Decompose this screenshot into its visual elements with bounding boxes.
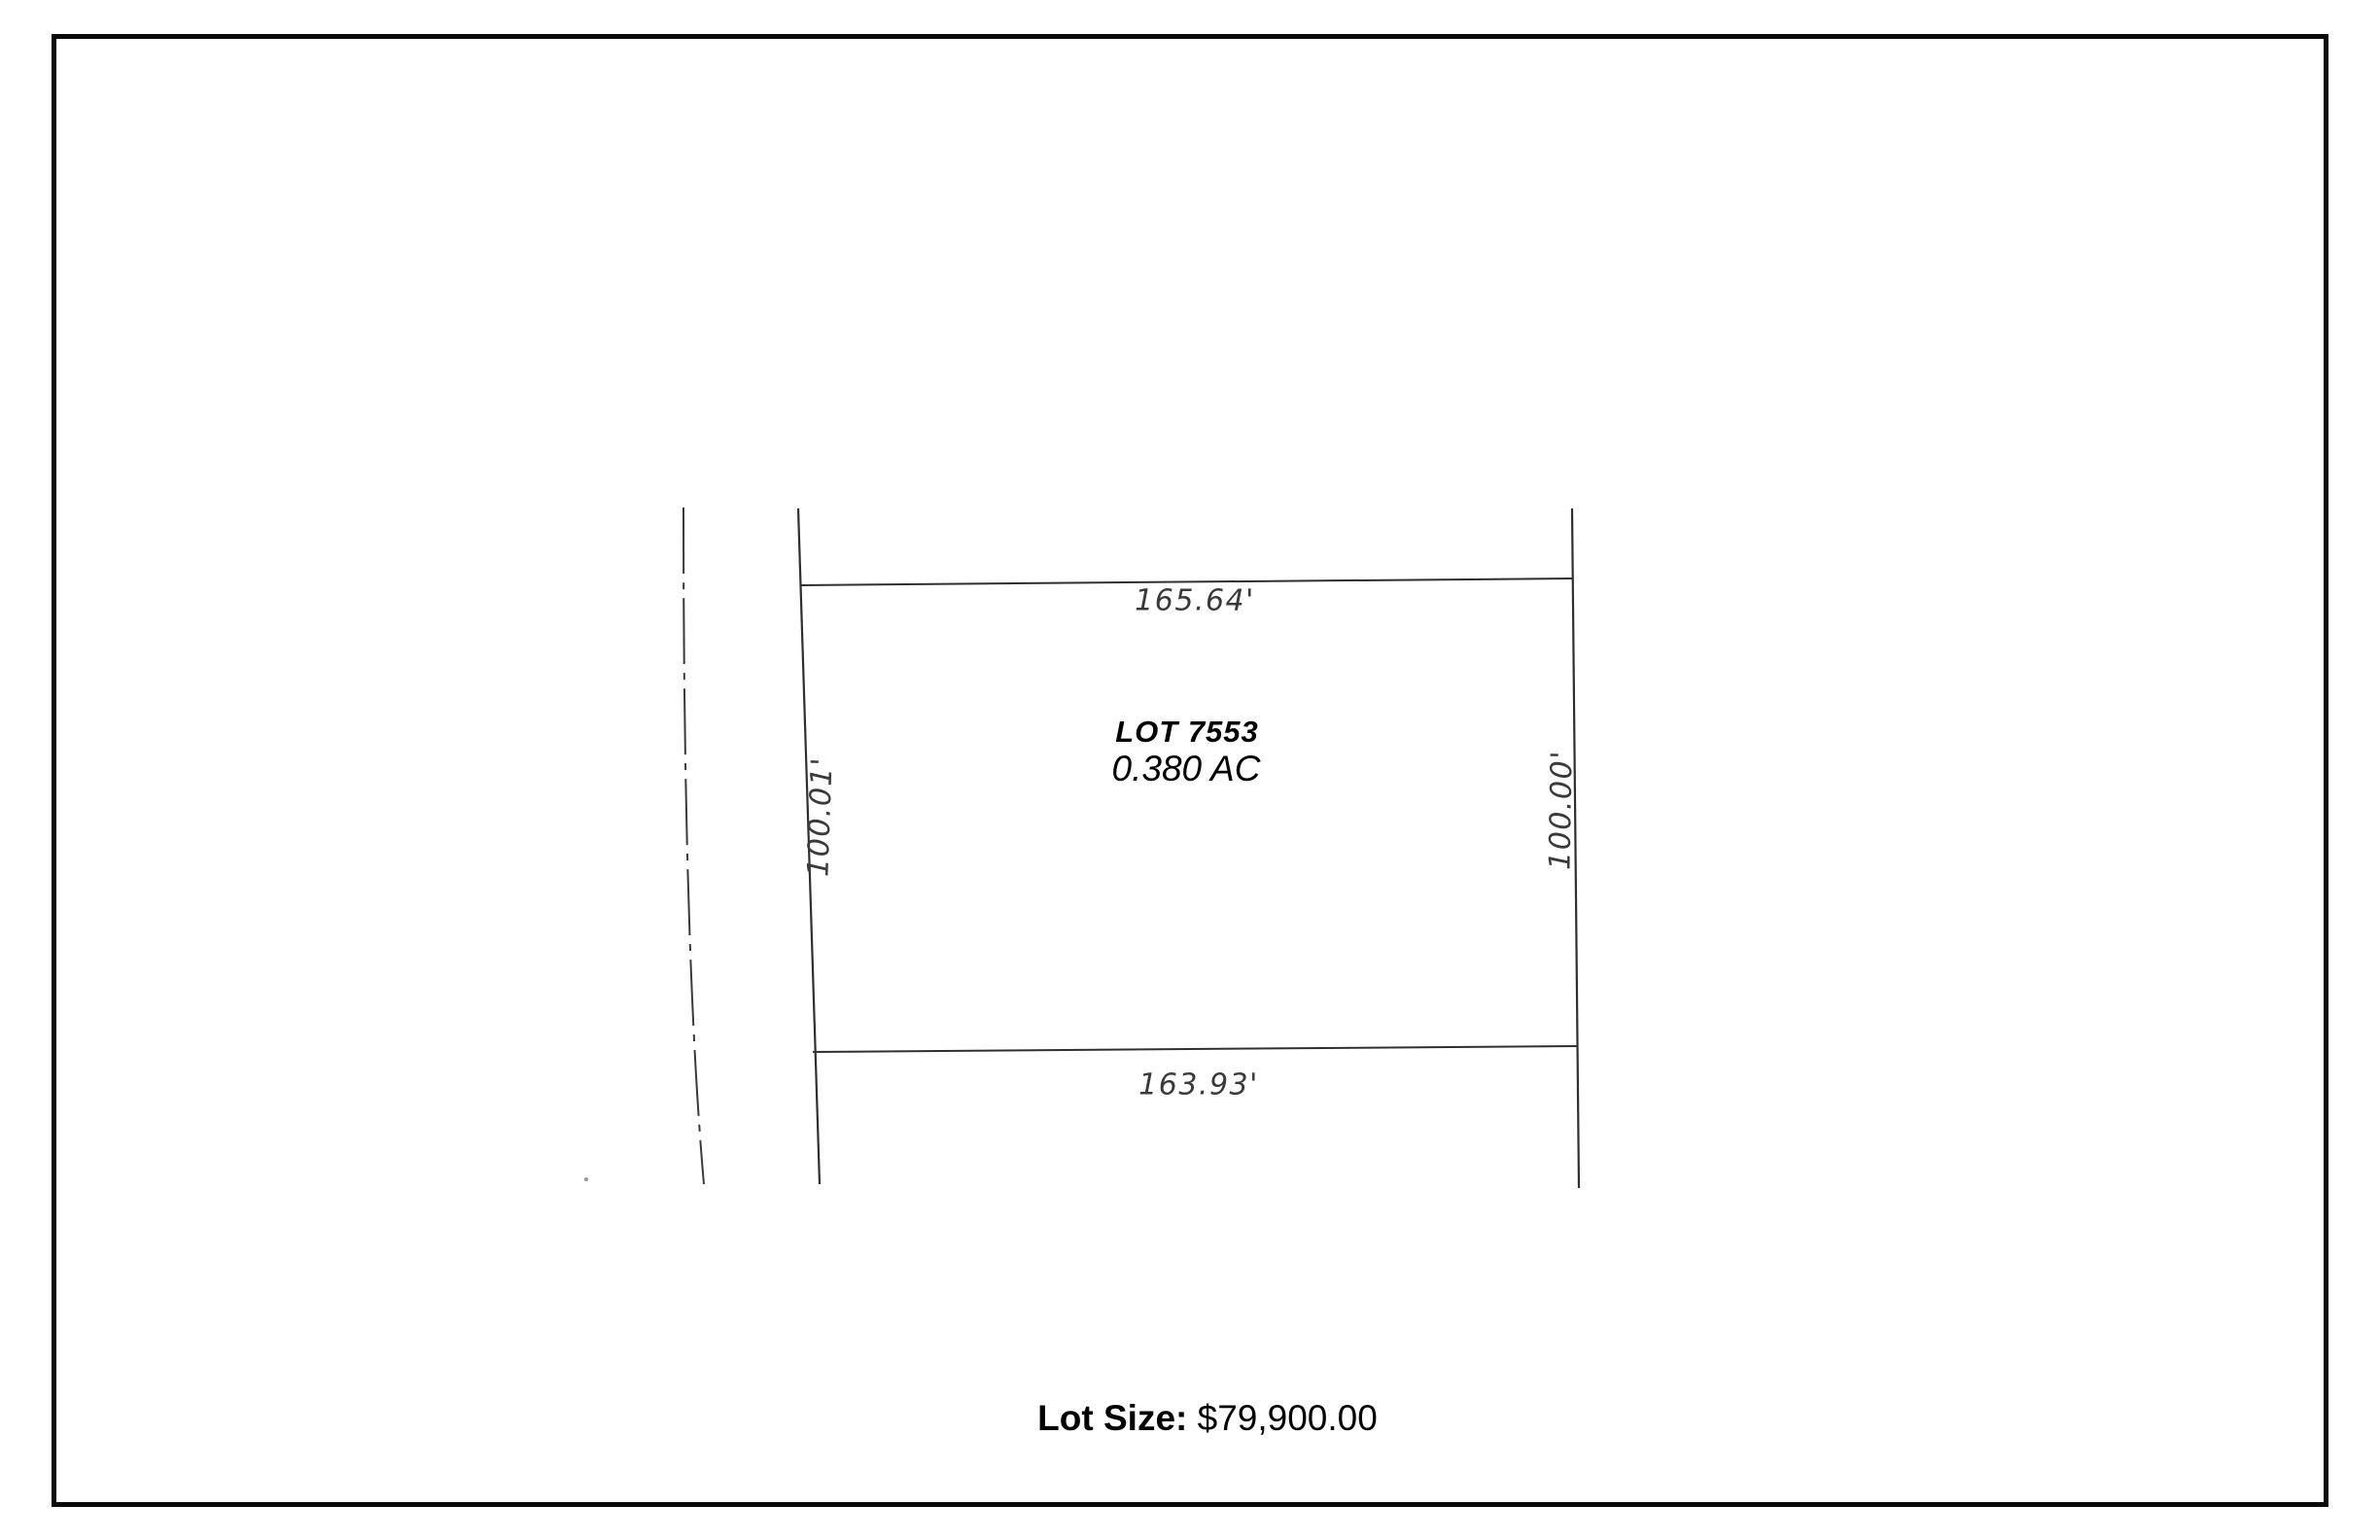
lot-number-label: LOT 7553 [1115,715,1259,750]
lot-boundary-bottom [813,1046,1577,1052]
lot-size-label: Lot Size: [1037,1398,1187,1438]
dimension-right: 100.00' [1543,750,1579,870]
dimension-bottom: 163.93' [1138,1068,1259,1102]
lot-size-value: $79,900.00 [1198,1398,1378,1438]
stray-mark [584,1177,588,1181]
road-centerline [683,507,704,1184]
lot-size-price: Lot Size: $79,900.00 [1037,1398,1378,1439]
lot-area-label: 0.380 AC [1112,749,1261,789]
dimension-left: 100.01' [801,756,839,878]
dimension-top: 165.64' [1135,584,1255,618]
